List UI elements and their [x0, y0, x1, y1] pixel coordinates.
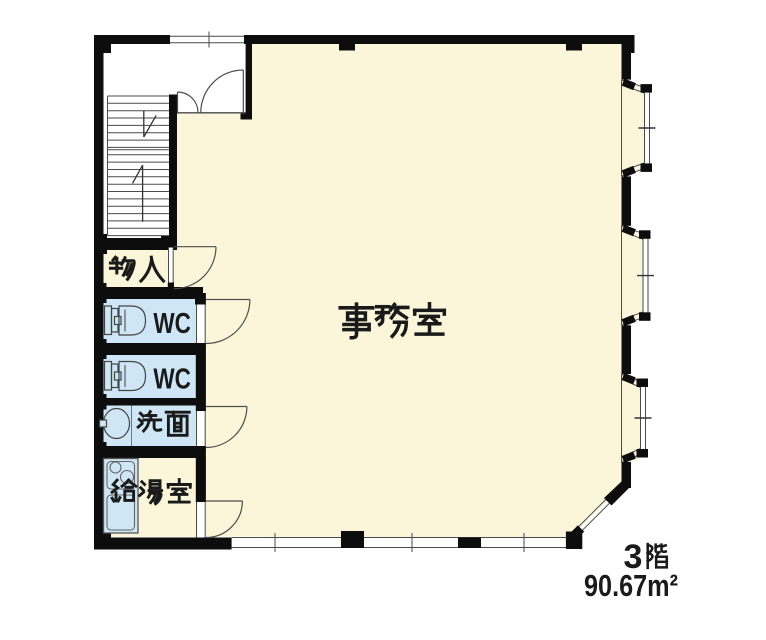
svg-text:WC: WC — [153, 308, 191, 340]
svg-text:WC: WC — [153, 364, 191, 396]
svg-text:90.67m²: 90.67m² — [584, 568, 678, 603]
